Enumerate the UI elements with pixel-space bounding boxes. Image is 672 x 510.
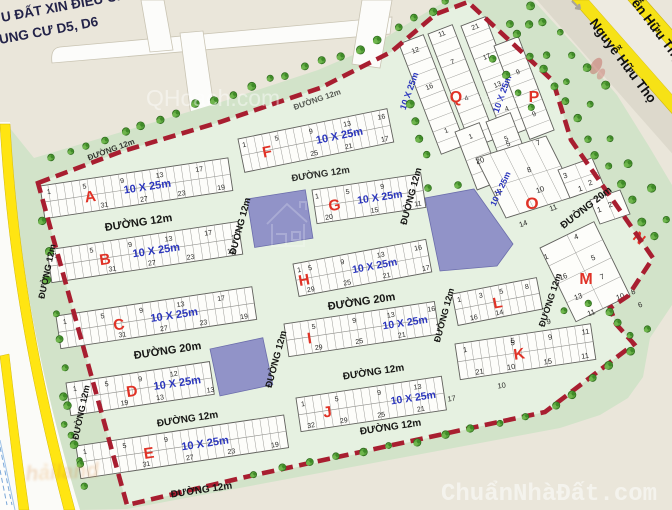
svg-text:21: 21 bbox=[475, 367, 485, 377]
svg-text:27: 27 bbox=[148, 260, 157, 268]
svg-text:hảiland: hảiland bbox=[25, 459, 101, 486]
svg-text:M: M bbox=[579, 271, 592, 288]
svg-text:27: 27 bbox=[140, 196, 149, 204]
svg-text:23: 23 bbox=[227, 448, 236, 456]
svg-text:P: P bbox=[529, 89, 540, 106]
svg-text:O: O bbox=[525, 194, 538, 213]
svg-text:19: 19 bbox=[271, 442, 280, 450]
svg-text:17: 17 bbox=[204, 230, 213, 238]
svg-text:10: 10 bbox=[497, 380, 507, 390]
svg-text:25: 25 bbox=[355, 338, 364, 346]
svg-text:Hoach.co: Hoach.co bbox=[465, 91, 528, 108]
svg-text:29: 29 bbox=[314, 344, 323, 352]
svg-text:16: 16 bbox=[414, 244, 423, 252]
svg-text:25: 25 bbox=[377, 412, 386, 420]
svg-text:11: 11 bbox=[581, 351, 590, 361]
svg-text:31: 31 bbox=[100, 202, 109, 210]
svg-text:ChuẩnNhàĐất.com: ChuẩnNhàĐất.com bbox=[441, 480, 657, 508]
svg-text:23: 23 bbox=[186, 254, 195, 262]
svg-text:11: 11 bbox=[581, 327, 590, 337]
svg-text:Q: Q bbox=[450, 89, 462, 106]
svg-text:21: 21 bbox=[382, 272, 391, 280]
svg-text:17: 17 bbox=[422, 265, 431, 273]
svg-text:QHoach.com: QHoach.com bbox=[146, 85, 280, 111]
svg-text:19: 19 bbox=[240, 313, 249, 321]
svg-text:25: 25 bbox=[343, 279, 352, 287]
svg-text:15: 15 bbox=[543, 356, 553, 366]
svg-text:19: 19 bbox=[217, 184, 226, 192]
svg-text:17: 17 bbox=[447, 393, 457, 403]
svg-text:17: 17 bbox=[195, 166, 204, 174]
svg-text:32: 32 bbox=[307, 422, 316, 430]
svg-text:21: 21 bbox=[398, 332, 407, 340]
svg-text:16: 16 bbox=[469, 314, 478, 322]
svg-text:21: 21 bbox=[417, 406, 426, 414]
svg-text:29: 29 bbox=[339, 417, 348, 425]
svg-text:27: 27 bbox=[186, 454, 195, 462]
svg-text:23: 23 bbox=[177, 190, 186, 198]
svg-text:16: 16 bbox=[427, 306, 436, 314]
svg-text:23: 23 bbox=[199, 319, 208, 327]
svg-text:17: 17 bbox=[217, 295, 226, 303]
svg-text:27: 27 bbox=[160, 325, 169, 333]
svg-text:15: 15 bbox=[370, 207, 379, 215]
svg-text:13: 13 bbox=[206, 387, 215, 395]
svg-text:13: 13 bbox=[156, 394, 165, 402]
svg-text:G: G bbox=[327, 197, 341, 216]
